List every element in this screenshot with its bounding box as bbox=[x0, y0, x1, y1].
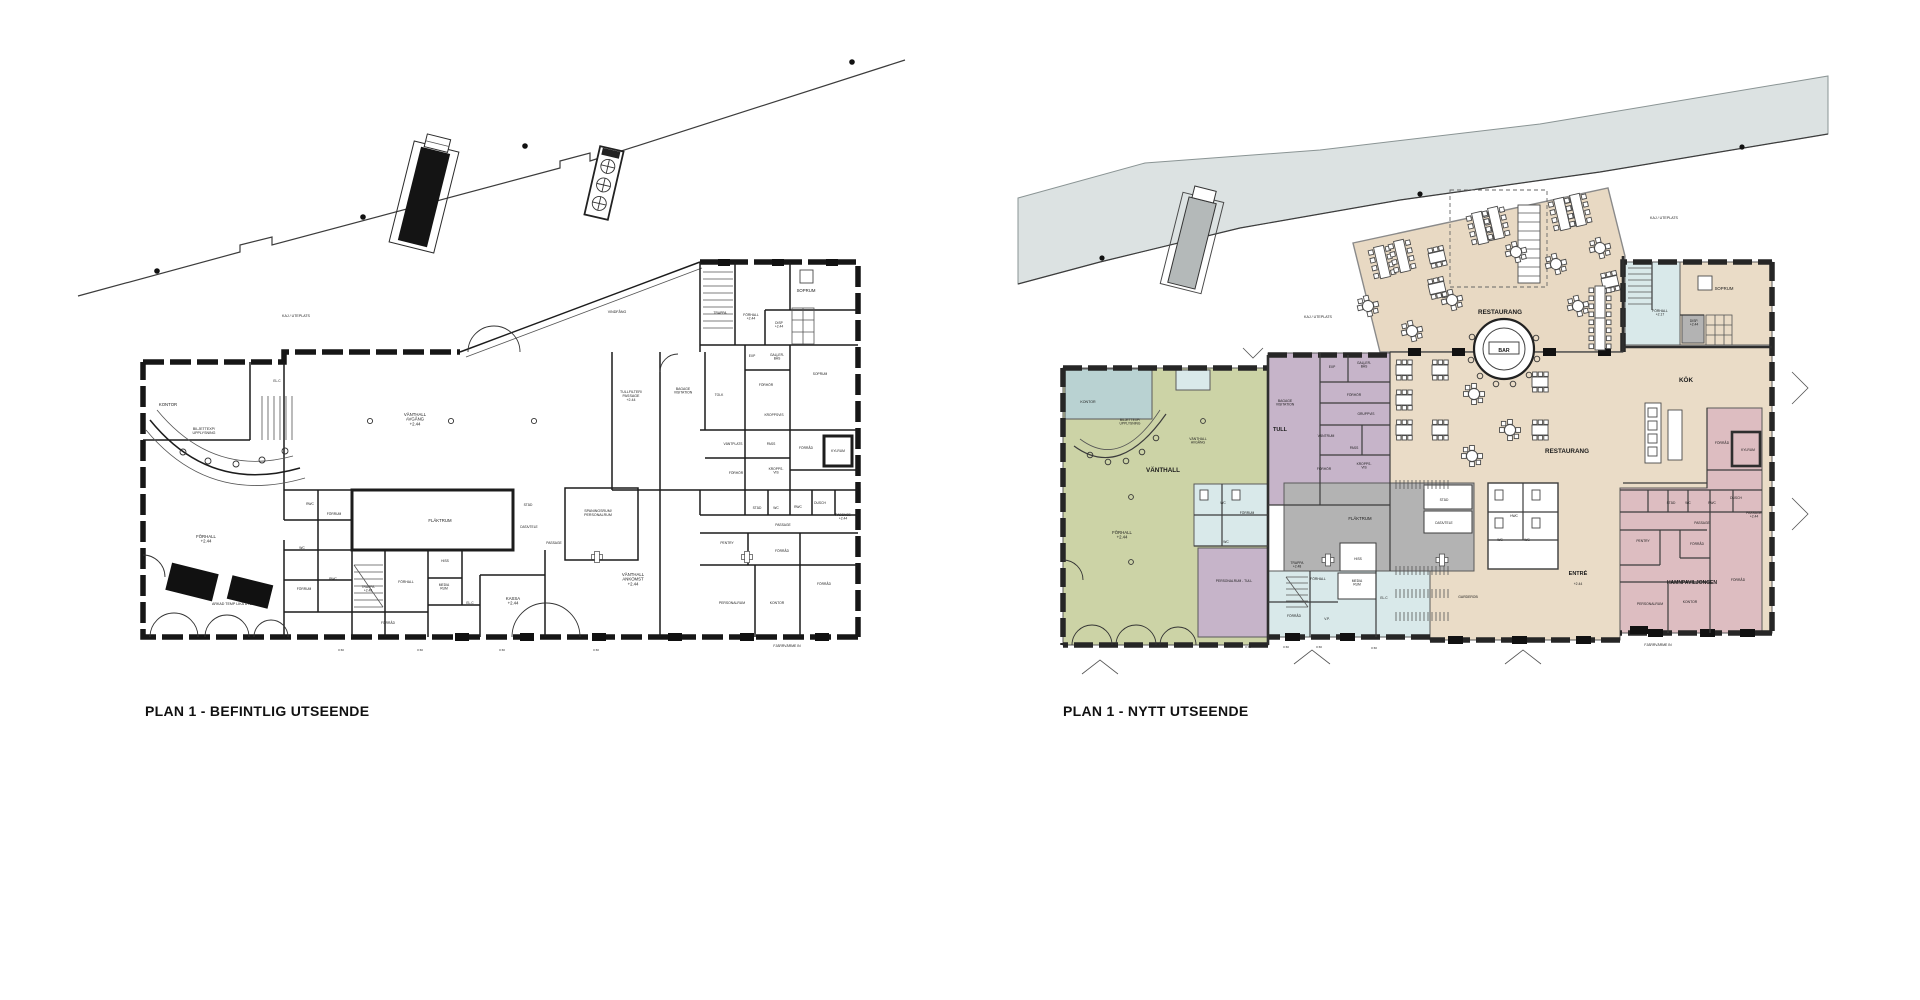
room-label: WC bbox=[1220, 501, 1226, 505]
room-label: KONTOR bbox=[1683, 600, 1698, 604]
gangway bbox=[389, 131, 461, 253]
room-label: BAGAGEVISITATION bbox=[674, 387, 693, 395]
room-label: PASS bbox=[767, 442, 776, 446]
plan-befintlig: KAJ / UTEPLATSVINDFÅNGVÄNTHALLAVGÅNG+2.4… bbox=[78, 59, 905, 719]
room-label: VÄNTHALL bbox=[1146, 466, 1180, 474]
left-plan-title: PLAN 1 - BEFINTLIG UTSEENDE bbox=[145, 703, 369, 719]
room-label: FÖRRÅD bbox=[775, 548, 790, 553]
room-label: 0 60 bbox=[338, 648, 344, 652]
room-label: EL.C bbox=[1380, 596, 1388, 600]
room-label: 0 60 bbox=[1371, 646, 1377, 650]
room-label: HAMNPAVILJONGEN bbox=[1667, 580, 1717, 586]
room-label: 0 60 bbox=[1245, 645, 1251, 649]
room-label: PERSONALRUM bbox=[719, 601, 745, 605]
room-label: EL.C bbox=[273, 379, 281, 383]
room-label: BAR bbox=[1498, 348, 1509, 354]
room-label: PERSONALRUM - TULL bbox=[1216, 579, 1253, 583]
room-label: FÖRHÖR bbox=[729, 471, 744, 475]
room-label: FÖRRÅD bbox=[1731, 577, 1746, 582]
room-label: DUSCH bbox=[1730, 496, 1742, 500]
room-label: SOPRUM bbox=[1715, 286, 1734, 291]
room-label: FJÄRRVÄRME IN bbox=[773, 644, 801, 648]
room-label: RESTAURANG bbox=[1545, 448, 1589, 455]
room-label: FÖRRÅD bbox=[381, 620, 396, 625]
room-label: KAJ / UTEPLATS bbox=[282, 314, 310, 318]
room-label: RWC bbox=[306, 502, 314, 506]
room-label: FÖRRÅD bbox=[1690, 541, 1705, 546]
room-label: TRAPPA bbox=[714, 311, 728, 315]
room-label: STÄD bbox=[524, 503, 533, 507]
room-label: SOPRUM bbox=[797, 288, 816, 293]
room-label: DATA/TELE bbox=[520, 525, 538, 529]
room-label: EL.C bbox=[466, 601, 474, 605]
room-label: ARKAD TEMP LIKA UTE bbox=[212, 602, 253, 606]
room-label: RWC bbox=[329, 577, 337, 581]
room-label: KYLRUM bbox=[831, 449, 845, 453]
room-label: 0 60 bbox=[1316, 645, 1322, 649]
room-label: VÄNTHALLAVGÅNG bbox=[1189, 437, 1207, 445]
room-label: PASSAGE bbox=[1694, 521, 1710, 525]
room-label: FÖRRÅD bbox=[817, 581, 832, 586]
room-label: FÖRHALL bbox=[398, 580, 414, 584]
room-label: FÖRHÖR bbox=[1317, 467, 1332, 471]
room-label: FÖRRUM bbox=[327, 512, 342, 516]
room-label: KAJ / UTEPLATS bbox=[1304, 315, 1332, 319]
room-label: HWC bbox=[1510, 514, 1518, 518]
room-label: SOPRUM bbox=[813, 372, 828, 376]
room-label: VINDFÅNG bbox=[608, 309, 627, 314]
room-label: STÄD bbox=[1667, 501, 1676, 505]
room-label: PERSONALRUM bbox=[1637, 602, 1663, 606]
room-label: TOLK bbox=[715, 393, 724, 397]
room-label: FJÄRRVÄRME IN bbox=[1644, 643, 1672, 647]
room-label: EXP bbox=[1329, 365, 1336, 369]
room-label: FLÄKTRUM bbox=[1348, 516, 1372, 521]
room-label: RWC bbox=[1708, 501, 1716, 505]
room-label: FÖRRÅD bbox=[799, 445, 814, 450]
room-label: PASS bbox=[1350, 446, 1359, 450]
quay-bollards bbox=[154, 59, 855, 274]
room-label: GARDEROB bbox=[1458, 595, 1478, 599]
room-label: FLÄKTRUM bbox=[428, 518, 452, 523]
room-label: WC bbox=[299, 546, 305, 550]
room-label: PENTRY bbox=[1636, 539, 1650, 543]
room-label: 0 60 bbox=[499, 648, 505, 652]
room-label: WC bbox=[1685, 501, 1691, 505]
room-label: PENTRY bbox=[720, 541, 734, 545]
room-label: FÖRHÖR bbox=[759, 383, 774, 387]
room-label: +2.44 bbox=[1574, 582, 1583, 586]
room-label: FÖRRUM bbox=[297, 587, 312, 591]
room-label: WC bbox=[1223, 540, 1229, 544]
room-label: STÄD bbox=[753, 506, 762, 510]
room-label: KÖK bbox=[1679, 375, 1693, 384]
room-label: 0 60 bbox=[593, 648, 599, 652]
drawing-sheet: KAJ / UTEPLATSVINDFÅNGVÄNTHALLAVGÅNG+2.4… bbox=[0, 0, 1920, 1000]
room-label: HISS bbox=[1354, 557, 1362, 561]
room-label: WC bbox=[773, 506, 779, 510]
zone-personalrum-tull bbox=[1198, 548, 1268, 637]
room-label: DISP.+2.44 bbox=[1690, 319, 1699, 327]
room-label: FÖRHALL bbox=[1310, 577, 1326, 581]
room-label: KYLRUM bbox=[1741, 448, 1755, 452]
room-label: DISP+2.44 bbox=[775, 321, 784, 329]
room-label: WC bbox=[1497, 538, 1503, 542]
room-label: DATA/TELE bbox=[1435, 521, 1453, 525]
room-label: KONTOR bbox=[1080, 400, 1096, 404]
room-label: GRUPPVIS bbox=[1357, 412, 1375, 416]
room-label: TULL bbox=[1273, 427, 1288, 433]
room-label: STÄD bbox=[1440, 498, 1449, 502]
room-label: FÖRHÖR bbox=[1347, 393, 1362, 397]
room-label: PASSAGE bbox=[775, 523, 791, 527]
floorplan-drawing: KAJ / UTEPLATSVINDFÅNGVÄNTHALLAVGÅNG+2.4… bbox=[0, 0, 1920, 1000]
room-label: BILJETTEXP/UPPLYSNING bbox=[193, 427, 216, 435]
room-label: 0 60 bbox=[1283, 645, 1289, 649]
room-label: RWC bbox=[794, 505, 802, 509]
room-label: VÄNTRUM bbox=[1318, 434, 1335, 438]
room-label: RESTAURANG bbox=[1478, 309, 1522, 316]
room-label: WC bbox=[1524, 538, 1530, 542]
room-label: KROPPSVIS bbox=[764, 413, 784, 417]
room-label: FÖRRUM bbox=[1240, 511, 1255, 515]
deck-stair bbox=[1518, 205, 1540, 283]
room-label: KONTOR bbox=[159, 402, 177, 407]
room-label: BAGAGEVISITATION bbox=[1276, 399, 1295, 407]
room-label: KAJ / UTEPLATS bbox=[1650, 216, 1678, 220]
right-plan-title: PLAN 1 - NYTT UTSEENDE bbox=[1063, 703, 1249, 719]
room-label: ENTRÉ bbox=[1569, 569, 1588, 577]
room-label: EXP bbox=[749, 354, 756, 358]
room-label: KASSA+2.44 bbox=[506, 596, 520, 606]
room-label: HISS bbox=[441, 559, 449, 563]
room-label: FÖRRÅD bbox=[1715, 440, 1730, 445]
room-label: 0 60 bbox=[417, 648, 423, 652]
room-label: V.P. bbox=[1324, 617, 1330, 621]
zone-kontor bbox=[1065, 369, 1152, 419]
room-label: KONTOR bbox=[770, 601, 785, 605]
plan-nytt: KAJ / UTEPLATSKAJ / UTEPLATSRESTAURANGBA… bbox=[1018, 76, 1828, 719]
room-label: FÖRRÅD bbox=[1287, 613, 1302, 618]
room-label: VÄNTPLATS bbox=[724, 442, 744, 446]
room-label: DUSCH bbox=[814, 501, 826, 505]
room-label: BILJETTEXP/UPPLYSNING bbox=[1119, 418, 1140, 426]
room-label: SPANINGSRUM/PERSONALRUM bbox=[584, 509, 612, 517]
room-label: PASSAGE bbox=[546, 541, 562, 545]
